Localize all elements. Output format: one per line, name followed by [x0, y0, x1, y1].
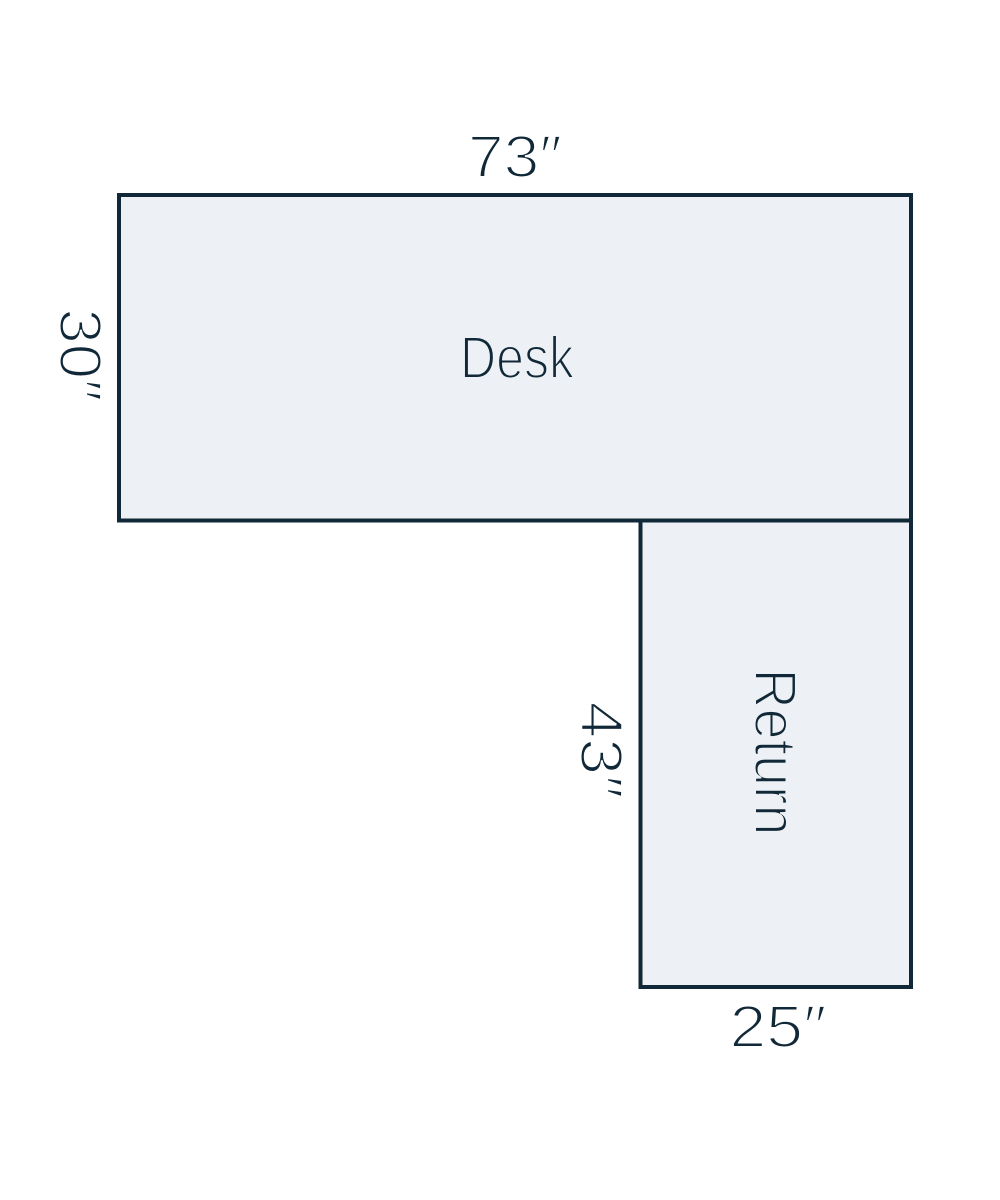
svg-text:73″: 73″	[468, 124, 562, 190]
svg-text:Return: Return	[742, 669, 808, 836]
svg-text:43″: 43″	[568, 702, 634, 799]
svg-text:25″: 25″	[730, 994, 827, 1060]
svg-text:Desk: Desk	[460, 325, 574, 391]
svg-text:30″: 30″	[47, 309, 113, 402]
